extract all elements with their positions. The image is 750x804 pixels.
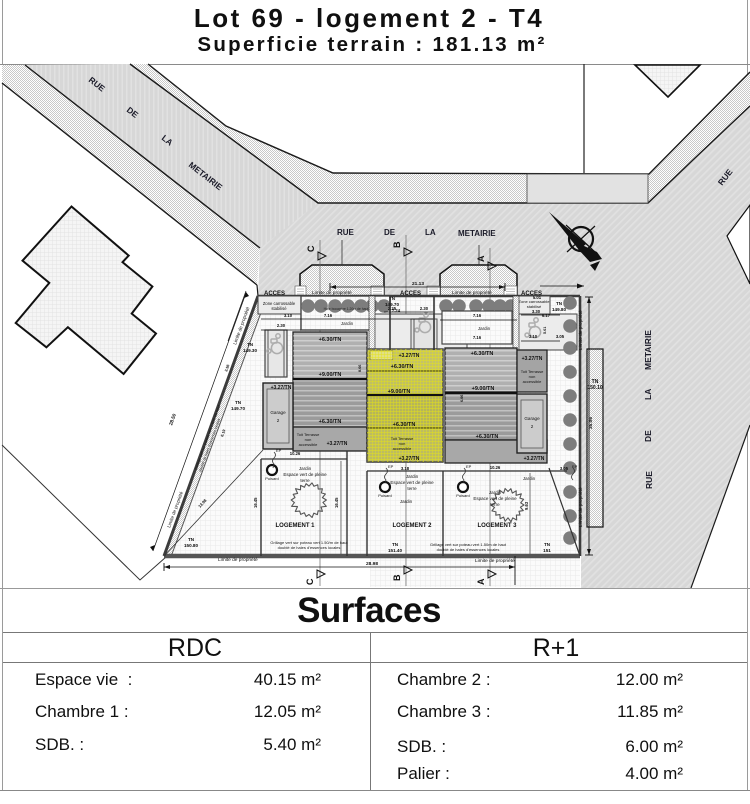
svg-text:DE: DE — [643, 430, 653, 442]
svg-text:LOGEMENT 3: LOGEMENT 3 — [477, 523, 517, 529]
svg-text:3.30: 3.30 — [532, 309, 541, 314]
svg-text:+6.30/TN: +6.30/TN — [476, 434, 499, 440]
svg-text:EP: EP — [572, 464, 578, 469]
svg-text:+9.00/TN: +9.00/TN — [472, 386, 495, 392]
svg-text:151: 151 — [543, 548, 551, 553]
svg-text:2.30: 2.30 — [277, 323, 286, 328]
svg-text:METAIRIE: METAIRIE — [458, 229, 496, 238]
svg-text:+3.27/TN: +3.27/TN — [399, 353, 420, 359]
svg-text:+6.30/TN: +6.30/TN — [319, 337, 342, 343]
svg-text:6.06: 6.06 — [460, 395, 464, 402]
svg-text:C: C — [306, 245, 316, 252]
svg-text:terre: terre — [490, 502, 500, 507]
svg-text:ACCES: ACCES — [400, 291, 421, 297]
svg-text:7.16: 7.16 — [473, 313, 482, 318]
svg-text:3.18: 3.18 — [401, 466, 410, 471]
svg-text:Jardin: Jardin — [299, 466, 312, 471]
svg-text:Limite de propriété: Limite de propriété — [475, 558, 515, 564]
svg-text:TN: TN — [235, 400, 242, 405]
svg-text:Jardin: Jardin — [478, 326, 491, 331]
svg-text:150.10: 150.10 — [587, 385, 603, 391]
svg-text:Jardin: Jardin — [400, 499, 413, 504]
svg-text:150.80: 150.80 — [184, 543, 198, 548]
svg-text:Puisard: Puisard — [456, 493, 470, 498]
svg-text:2: 2 — [531, 424, 534, 429]
svg-text:TN: TN — [188, 537, 195, 542]
svg-text:EP: EP — [276, 448, 282, 453]
svg-text:A: A — [476, 578, 486, 585]
svg-text:Espace vert de pleine: Espace vert de pleine — [283, 472, 327, 477]
svg-text:Puisard: Puisard — [265, 476, 279, 481]
svg-text:+3.27/TN: +3.27/TN — [522, 356, 543, 362]
svg-text:Puisard: Puisard — [378, 493, 392, 498]
svg-text:Limite de propriété: Limite de propriété — [578, 487, 584, 527]
svg-text:DE: DE — [384, 228, 396, 237]
svg-text:Jardin: Jardin — [341, 321, 354, 326]
svg-text:TN: TN — [544, 542, 551, 547]
svg-text:3.05: 3.05 — [556, 334, 565, 339]
svg-text:LOGEMENT 2: LOGEMENT 2 — [392, 523, 432, 529]
svg-text:LA: LA — [425, 228, 436, 237]
svg-text:B: B — [392, 574, 402, 581]
svg-text:Espace vert de pleine: Espace vert de pleine — [390, 480, 434, 485]
svg-text:3.10: 3.10 — [284, 313, 293, 318]
svg-text:accessible: accessible — [393, 446, 412, 451]
svg-text:149.70: 149.70 — [231, 406, 245, 411]
svg-text:10.26: 10.26 — [290, 451, 301, 456]
svg-text:+6.30/TN: +6.30/TN — [393, 422, 416, 428]
svg-text:+3.27/TN: +3.27/TN — [271, 385, 292, 391]
svg-text:LOGEMENT 1: LOGEMENT 1 — [275, 523, 315, 529]
svg-text:7.16: 7.16 — [473, 335, 482, 340]
svg-text:RUE: RUE — [337, 228, 355, 237]
svg-text:2.30: 2.30 — [420, 306, 429, 311]
svg-text:+6.30/TN: +6.30/TN — [391, 364, 414, 370]
svg-text:LA: LA — [643, 389, 653, 400]
svg-text:Garage: Garage — [524, 416, 540, 421]
svg-text:TN: TN — [247, 342, 254, 347]
svg-text:16.45: 16.45 — [334, 497, 339, 508]
svg-text:Garage: Garage — [270, 410, 286, 415]
svg-text:stabilisé: stabilisé — [271, 306, 287, 311]
svg-text:EP: EP — [388, 464, 394, 469]
svg-text:151.40: 151.40 — [388, 548, 402, 553]
svg-text:Limite de propriété: Limite de propriété — [218, 557, 258, 563]
svg-text:5.61: 5.61 — [543, 327, 547, 334]
svg-text:C: C — [305, 578, 315, 585]
svg-text:doublé de haies d'essences loc: doublé de haies d'essences locales — [437, 547, 500, 552]
svg-text:16.45: 16.45 — [253, 497, 258, 508]
svg-text:149.30: 149.30 — [243, 348, 257, 353]
svg-text:Limite de propriété: Limite de propriété — [312, 290, 352, 296]
svg-text:7.16: 7.16 — [324, 313, 333, 318]
svg-text:RUE: RUE — [644, 471, 654, 489]
svg-text:9.63: 9.63 — [524, 501, 529, 510]
svg-text:+6.30/TN: +6.30/TN — [471, 351, 494, 357]
svg-text:8.66: 8.66 — [358, 365, 362, 372]
svg-text:EP: EP — [466, 464, 472, 469]
svg-text:Jardin: Jardin — [523, 476, 536, 481]
svg-text:3.05: 3.05 — [560, 466, 569, 471]
svg-text:5.01: 5.01 — [533, 295, 542, 300]
svg-text:+3.27/TN: +3.27/TN — [524, 456, 545, 462]
svg-text:28.50: 28.50 — [168, 413, 178, 427]
svg-text:terre: terre — [407, 486, 417, 491]
svg-text:Jardin: Jardin — [406, 474, 419, 479]
svg-text:TN: TN — [556, 301, 563, 306]
svg-text:Limite de propriété: Limite de propriété — [578, 310, 584, 350]
svg-text:+3.27/TN: +3.27/TN — [399, 456, 420, 462]
svg-text:Jardin: Jardin — [489, 490, 502, 495]
svg-text:21.13: 21.13 — [412, 281, 424, 287]
svg-text:28.98: 28.98 — [366, 561, 378, 567]
svg-text:10.26: 10.26 — [490, 465, 501, 470]
svg-text:A: A — [476, 255, 486, 262]
svg-text:149.80: 149.80 — [552, 307, 566, 312]
svg-text:6.17: 6.17 — [542, 313, 551, 318]
svg-text:+3.27/TN: +3.27/TN — [327, 441, 348, 447]
svg-text:3.10: 3.10 — [529, 334, 538, 339]
svg-text:B: B — [392, 241, 402, 248]
svg-text:Espace vert de pleine: Espace vert de pleine — [473, 496, 517, 501]
svg-text:+9.00/TN: +9.00/TN — [319, 372, 342, 378]
svg-text:accessible: accessible — [299, 442, 318, 447]
svg-text:TN: TN — [392, 542, 399, 547]
svg-text:Haie bocagère 1.20m de haut: Haie bocagère 1.20m de haut — [324, 307, 369, 311]
svg-text:accessible: accessible — [523, 379, 542, 384]
svg-text:Limite de propriété: Limite de propriété — [452, 290, 492, 296]
svg-text:terre: terre — [300, 478, 310, 483]
svg-text:2: 2 — [277, 418, 280, 423]
svg-text:METAIRIE: METAIRIE — [643, 330, 653, 370]
svg-text:+6.30/TN: +6.30/TN — [319, 419, 342, 425]
svg-text:doublé de haies d'essences loc: doublé de haies d'essences locales — [278, 545, 341, 550]
svg-text:ACCES: ACCES — [264, 291, 285, 297]
